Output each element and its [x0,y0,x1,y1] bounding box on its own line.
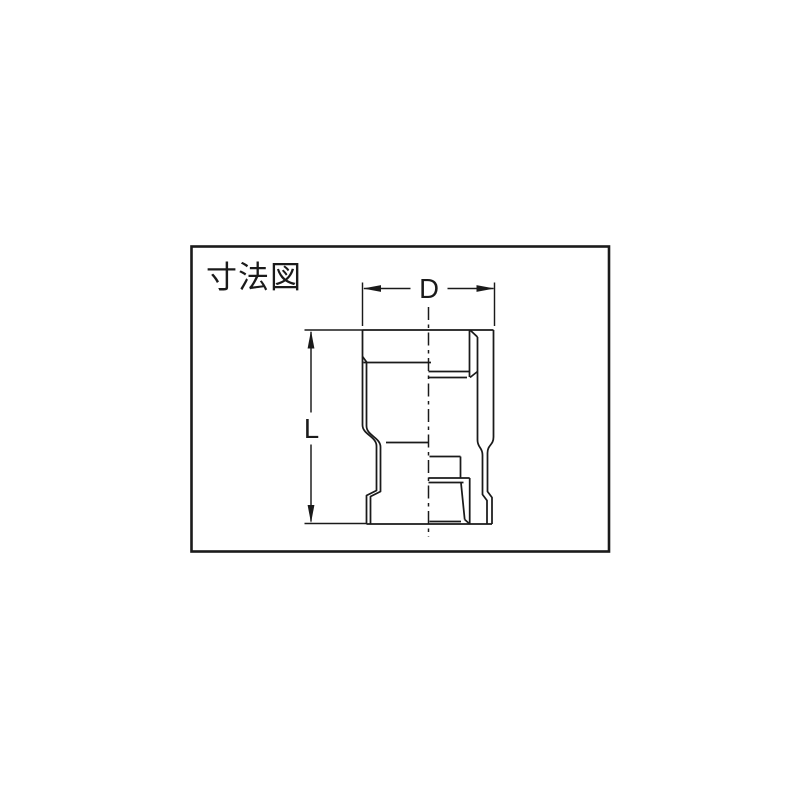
l-arrow-up-icon [308,331,315,349]
drawing-title: 寸法図 [206,260,302,295]
l-dimension-label: L [304,413,319,444]
dimension-drawing-canvas: 寸法図 D L [0,0,800,800]
left-inner-profile [367,363,381,525]
d-dimension-label: D [419,273,439,304]
dimension-drawing-page: 寸法図 D L [0,0,800,800]
l-arrow-down-icon [308,505,315,523]
upper-mouth-chamfer [470,330,478,337]
right-inner-profile [478,337,488,524]
dimension-l: L [304,330,367,524]
right-outer-profile [488,330,494,524]
upper-thread-end-chamfer [470,372,478,378]
d-arrow-right-icon [477,285,495,292]
d-arrow-left-icon [363,285,381,292]
lower-thread-taper-line [461,483,465,520]
